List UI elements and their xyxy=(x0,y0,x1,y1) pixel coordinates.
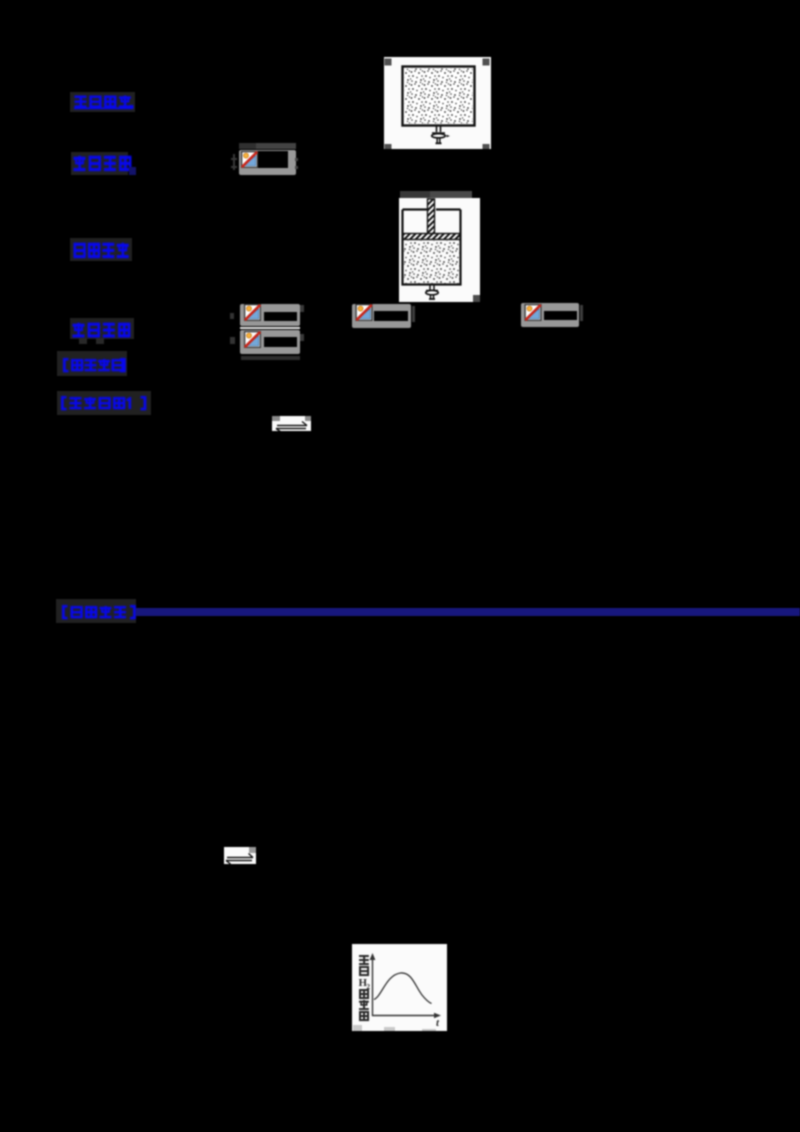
svg-text:t: t xyxy=(436,1017,440,1029)
